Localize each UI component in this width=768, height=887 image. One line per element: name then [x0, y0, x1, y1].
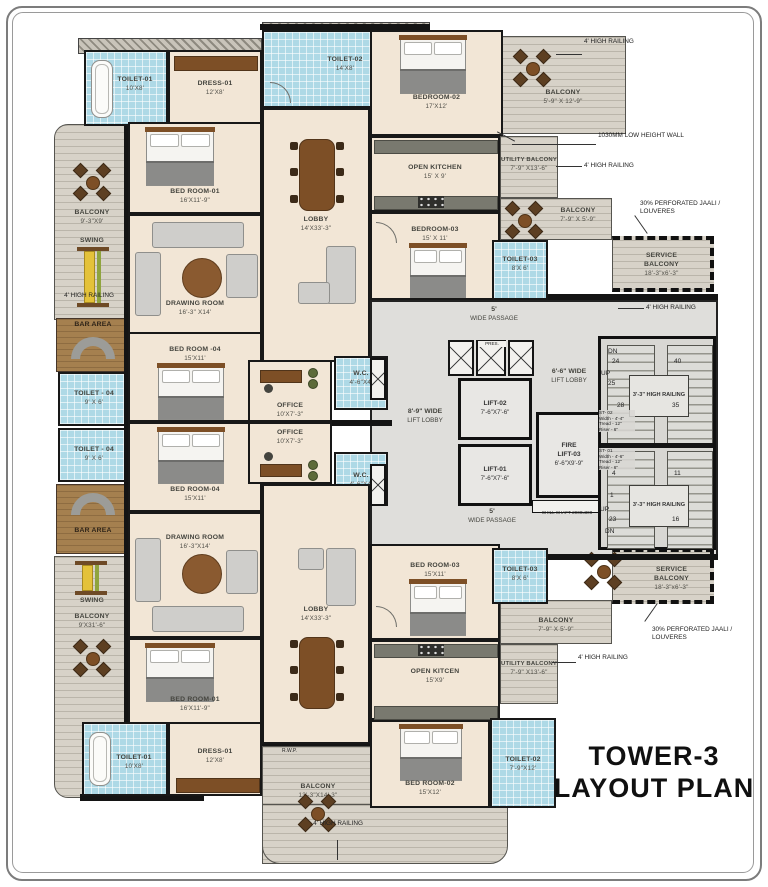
- chair-icon: [513, 49, 529, 65]
- swing-top-label: SWING: [55, 237, 129, 246]
- drawing-room-top-label: DRAWING ROOM16'-3" X14': [130, 300, 260, 317]
- table-icon: [311, 807, 325, 821]
- coffee-table-icon: [182, 554, 222, 594]
- st01-spec: ST- 01 Width - 4'-6" Tread - 12" Riser -…: [599, 448, 635, 470]
- room-office-a: OFFICE10'X7'-3": [248, 360, 332, 422]
- chair-icon: [336, 666, 344, 674]
- room-drawing-room-bottom: DRAWING ROOM16'-3"X14': [128, 512, 262, 638]
- leader-line: [634, 215, 647, 234]
- armchair-icon: [226, 254, 258, 298]
- service-balcony-bottom-label: SERVICE BALCONY18'-3"x6'-3": [613, 566, 710, 592]
- bed-icon: [410, 582, 466, 636]
- stair-num: 35: [672, 402, 679, 409]
- chair-icon: [298, 817, 314, 833]
- room-lobby-bottom: LOBBY14'X33'-3": [262, 484, 370, 744]
- pillow: [181, 134, 209, 147]
- guest-chair-icon: [308, 368, 318, 378]
- patio-set-icon: [73, 163, 111, 201]
- bedroom-02-bottom-label: BED ROOM-0215'X12': [372, 780, 488, 797]
- balcony-bottom-small-label: BALCONY7'-9" X 5'-9": [501, 617, 611, 634]
- chair-icon: [298, 794, 314, 810]
- bed-icon: [400, 38, 466, 94]
- utility-balcony-bottom: UTILITY BALCONY7'-9" X13'-6": [500, 644, 558, 704]
- room-bedroom-01-top: BED ROOM-0116'X11'-9": [128, 122, 262, 214]
- pillow: [404, 42, 432, 55]
- floor-plan-canvas: BALCONY 9'-3"X9' SWING BAR AREA TOILET -…: [0, 0, 768, 887]
- room-toilet-02-bottom: TOILET-027'-9"X12': [490, 718, 556, 808]
- chair-icon: [336, 195, 344, 203]
- stair-landing-st02: 3'-3" HIGH RAILING: [629, 375, 689, 417]
- room-toilet-03-bottom: TOILET-038'X 6': [492, 548, 548, 604]
- utility-balcony-top-label: UTILITY BALCONY7'-9" X13'-6": [501, 157, 557, 173]
- stair-num: 40: [674, 358, 681, 365]
- swing-frame: [95, 565, 99, 591]
- chair-icon: [290, 640, 298, 648]
- stair-num: 1: [610, 492, 614, 499]
- stair-num: 23: [609, 516, 616, 523]
- bedroom-01-bottom-label: BED ROOM-0116'X11'-9": [130, 696, 260, 713]
- chair-icon: [505, 201, 521, 217]
- table-icon: [597, 565, 611, 579]
- chair-icon: [528, 224, 544, 240]
- lift-01: LIFT-017'-6"X7'-6": [458, 444, 532, 506]
- lift-lobby-fire-label: 6'-6" WIDELIFT LOBBY: [534, 368, 604, 385]
- bed-icon: [146, 646, 214, 702]
- sofa-icon: [152, 606, 244, 632]
- guest-chair-icon: [308, 471, 318, 481]
- pillow: [414, 250, 438, 263]
- bedroom-02-top-label: BEDROOM-0217'X12': [372, 94, 501, 111]
- passage-top-label: 5'WIDE PASSAGE: [452, 306, 536, 323]
- bar-area-top: BAR AREA: [56, 318, 130, 372]
- room-bedroom-03-bottom: BED ROOM-0315'X11': [370, 544, 500, 640]
- open-kitchen-top-label: OPEN KITCHEN15' X 9': [372, 164, 498, 181]
- stair-num: 4: [612, 470, 616, 477]
- shaft-icon: [448, 340, 474, 376]
- chair-icon: [290, 195, 298, 203]
- leader-line: [512, 144, 596, 145]
- headboard: [145, 643, 215, 648]
- blanket: [400, 757, 462, 780]
- patio-set-icon: [73, 639, 111, 677]
- chair-icon: [73, 186, 89, 202]
- bar-counter-icon: [71, 493, 115, 515]
- dining-top: [299, 637, 335, 709]
- chair-icon: [290, 168, 298, 176]
- kitchen-counter-icon: [374, 706, 498, 720]
- pillow: [432, 731, 458, 744]
- bar-area-top-label: BAR AREA: [57, 321, 129, 330]
- blanket: [158, 396, 224, 419]
- rwp-label: R.W.P.: [282, 748, 316, 754]
- bedroom-03-bottom-label: BED ROOM-0315'X11': [372, 562, 498, 579]
- headboard: [399, 35, 467, 40]
- office-a-label: OFFICE10'X7'-3": [250, 402, 330, 419]
- room-office-b: OFFICE10'X7'-3": [248, 422, 332, 484]
- headboard: [409, 579, 467, 584]
- stair-landing-st01: 3'-3" HIGH RAILING: [629, 485, 689, 527]
- pillow: [404, 731, 430, 744]
- sofa-icon: [326, 246, 356, 304]
- chair-icon: [584, 575, 600, 591]
- st02-spec: ST- 02 Width - 4'-4" Tread - 12" Riser -…: [599, 410, 635, 432]
- annotation-low-wall: 1030MM LOW HEIGHT WALL: [598, 132, 718, 140]
- room-toilet-01-top: TOILET-0110'X8': [84, 50, 168, 126]
- title-line2: LAYOUT PLAN: [548, 772, 760, 804]
- sofa-icon: [152, 222, 244, 248]
- balcony-top-small-label: BALCONY7'-9" X 5'-9": [545, 207, 611, 224]
- stove-icon: [418, 196, 444, 208]
- chair-icon: [73, 662, 89, 678]
- chair-icon: [607, 575, 623, 591]
- guest-chair-icon: [308, 460, 318, 470]
- shaft-icon: [508, 340, 534, 376]
- dress-01-bottom-label: DRESS-0112'X8': [170, 748, 260, 765]
- passage-bottom-label: 5'WIDE PASSAGE: [450, 508, 534, 525]
- bedroom-04-top-label: BED ROOM -0415'X11': [130, 346, 260, 363]
- chair-icon: [336, 640, 344, 648]
- chair-icon: [336, 168, 344, 176]
- swing-bottom-label: SWING: [55, 597, 129, 606]
- balcony-left-top: BALCONY 9'-3"X9' SWING: [54, 124, 130, 320]
- swing-seat: [82, 565, 93, 591]
- chair-icon: [290, 693, 298, 701]
- stair-dn-label: DN: [608, 348, 617, 355]
- chill-shaft: CHILL SHAFT 2000x300: [532, 500, 602, 513]
- leader-line: [337, 840, 338, 860]
- sofa-icon: [298, 548, 324, 570]
- chair-icon: [336, 142, 344, 150]
- blanket: [158, 460, 224, 483]
- title-line1: TOWER-3: [548, 742, 760, 772]
- office-b-label: OFFICE10'X7'-3": [250, 429, 330, 446]
- room-bedroom-02-top: BEDROOM-0217'X12': [370, 30, 503, 136]
- table-icon: [518, 214, 532, 228]
- wardrobe-icon: [174, 56, 258, 71]
- stair-up-label: UP: [600, 506, 609, 513]
- fire-lift-03: FIRELIFT-036'-6"X9'-9": [536, 412, 602, 498]
- toilet-03-top-label: TOILET-038'X 6': [494, 256, 546, 273]
- room-dress-01-top: DRESS-0112'X8': [168, 50, 262, 126]
- blanket: [146, 161, 214, 185]
- annotation-railing-bottom-right: 4' HIGH RAILING: [578, 654, 636, 662]
- wardrobe-icon: [176, 778, 260, 793]
- dining-table-icon: [290, 632, 344, 714]
- blanket: [400, 69, 466, 93]
- chair-icon: [528, 201, 544, 217]
- swing-bar: [77, 303, 109, 307]
- pillow: [192, 370, 220, 383]
- lift-lobby-main-label: 8'-9" WIDELIFT LOBBY: [392, 408, 458, 425]
- chair-icon: [290, 142, 298, 150]
- lobby-bottom-label: LOBBY14'X33'-3": [264, 606, 368, 623]
- bed-icon: [146, 130, 214, 186]
- balcony-top-right: BALCONY5'-9" X 12'-9": [500, 36, 626, 134]
- chair-icon: [96, 662, 112, 678]
- bedroom-04-bottom-label: BED ROOM-0415'X11': [130, 486, 260, 503]
- chair-icon: [336, 693, 344, 701]
- room-toilet-04-b: TOILET - 049' X 6': [58, 428, 130, 482]
- stair-num: 28: [617, 402, 624, 409]
- utility-balcony-bottom-label: UTILITY BALCONY7'-9" X13'-6": [501, 661, 557, 677]
- chair-icon: [321, 794, 337, 810]
- annotation-railing-mid: 4' HIGH RAILING: [646, 304, 726, 312]
- pres-shaft-label: PRES.: [478, 341, 506, 347]
- chair-icon: [536, 49, 552, 65]
- sofa-icon: [135, 538, 161, 602]
- open-kitchen-bottom-label: OPEN KITCEN15'X9': [372, 668, 498, 685]
- annotation-railing-right: 4' HIGH RAILING: [584, 162, 674, 170]
- leader-line: [644, 603, 657, 622]
- patio-set-icon: [513, 49, 551, 87]
- stair-num: 11: [674, 470, 681, 477]
- bed-icon: [158, 430, 224, 484]
- chair-icon: [96, 639, 112, 655]
- table-icon: [86, 652, 100, 666]
- swing-bar: [75, 591, 107, 595]
- room-open-kitchen-bottom: OPEN KITCEN15'X9': [370, 640, 500, 720]
- stove-icon: [418, 644, 444, 656]
- toilet-04-a-label: TOILET - 049' X 6': [60, 390, 128, 407]
- room-dress-01-bottom: DRESS-0112'X8': [168, 722, 262, 796]
- room-bedroom-04-top: BED ROOM -0415'X11': [128, 332, 262, 422]
- headboard: [399, 724, 463, 729]
- chair-icon: [505, 224, 521, 240]
- guest-chair-icon: [308, 379, 318, 389]
- room-lobby-top: LOBBY14'X33'-3": [262, 108, 370, 362]
- annotation-railing-top-right: 4' HIGH RAILING: [584, 38, 642, 46]
- table-icon: [526, 62, 540, 76]
- annotation-jaali-top: 30% PERFORATED JAALI / LOUVERES: [640, 200, 732, 216]
- dining-top: [299, 139, 335, 211]
- bar-area-bottom-label: BAR AREA: [57, 527, 129, 536]
- chair-icon: [73, 639, 89, 655]
- room-toilet-03-top: TOILET-038'X 6': [492, 240, 548, 300]
- bar-area-bottom: BAR AREA: [56, 484, 130, 554]
- stair-num: 24: [612, 358, 619, 365]
- toilet-03-bottom-label: TOILET-038'X 6': [494, 566, 546, 583]
- swing-icon: [75, 561, 107, 595]
- headboard: [157, 363, 225, 368]
- stair-num: 16: [672, 516, 679, 523]
- dining-table-icon: [290, 134, 344, 216]
- armchair-icon: [226, 550, 258, 594]
- chair-icon: [513, 72, 529, 88]
- drawing-title: TOWER-3 LAYOUT PLAN: [548, 742, 760, 804]
- room-drawing-room-top: DRAWING ROOM16'-3" X14': [128, 214, 262, 336]
- bedroom-01-top-label: BED ROOM-0116'X11'-9": [130, 188, 260, 205]
- pillow: [434, 42, 462, 55]
- toilet-01-top-label: TOILET-0110'X8': [104, 76, 166, 93]
- annotation-railing-left: 4' HIGH RAILING: [62, 292, 116, 300]
- door-arc: [270, 82, 291, 103]
- patio-set-icon: [505, 201, 543, 239]
- door-arc: [376, 606, 397, 627]
- pillow: [181, 650, 209, 663]
- balcony-bottom-small: BALCONY7'-9" X 5'-9": [500, 600, 612, 644]
- pillow: [162, 434, 190, 447]
- toilet-01-bottom-label: TOILET-0110'X8': [102, 754, 166, 771]
- balcony-top-right-label: BALCONY5'-9" X 12'-9": [501, 89, 625, 106]
- lift-02: LIFT-027'-6"X7'-6": [458, 378, 532, 440]
- leader-line: [556, 54, 582, 55]
- pillow: [439, 586, 463, 599]
- office-chair-icon: [264, 384, 273, 393]
- bed-icon: [400, 727, 462, 781]
- coffee-table-icon: [182, 258, 222, 298]
- office-chair-icon: [264, 452, 273, 461]
- bar-counter-icon: [71, 337, 115, 359]
- stair-up-label: UP: [601, 370, 610, 377]
- sofa-icon: [298, 282, 330, 304]
- balcony-top-small: BALCONY7'-9" X 5'-9": [500, 198, 612, 240]
- leader-line: [618, 308, 644, 309]
- pillow: [439, 250, 463, 263]
- annotation-railing-bottom: 4' HIGH RAILING: [312, 820, 364, 828]
- room-bedroom-03-top: BEDROOM-0315' X 11': [370, 212, 500, 300]
- blanket: [410, 275, 466, 297]
- stair-num: 25: [608, 380, 615, 387]
- room-open-kitchen-top: OPEN KITCHEN15' X 9': [370, 136, 500, 212]
- toilet-02-bottom-label: TOILET-027'-9"X12': [492, 756, 554, 773]
- room-toilet-04-a: TOILET - 049' X 6': [58, 372, 130, 426]
- chair-icon: [536, 72, 552, 88]
- table-icon: [86, 176, 100, 190]
- blanket: [410, 612, 466, 635]
- lobby-top-label: LOBBY14'X33'-3": [264, 216, 368, 233]
- headboard: [157, 427, 225, 432]
- balcony-left-top-label: BALCONY 9'-3"X9': [55, 209, 129, 226]
- room-toilet-01-bottom: TOILET-0110'X8': [82, 722, 168, 796]
- chair-icon: [96, 163, 112, 179]
- desk-icon: [260, 464, 302, 477]
- stair-dn-label: DN: [605, 528, 614, 535]
- leader-line: [552, 662, 576, 663]
- chair-icon: [290, 666, 298, 674]
- pillow: [150, 650, 178, 663]
- headboard: [145, 127, 215, 132]
- kitchen-counter-icon: [374, 140, 498, 154]
- service-balcony-top-label: SERVICE BALCONY18'-3"x6'-3": [613, 252, 710, 278]
- utility-balcony-top: UTILITY BALCONY7'-9" X13'-6": [500, 136, 558, 198]
- headboard: [409, 243, 467, 248]
- pillow: [414, 586, 438, 599]
- annotation-jaali-bottom: 30% PERFORATED JAALI / LOUVERES: [652, 626, 744, 642]
- sofa-icon: [326, 548, 356, 606]
- room-bedroom-01-bottom: BED ROOM-0116'X11'-9": [128, 638, 262, 730]
- chair-icon: [73, 163, 89, 179]
- room-bedroom-02-bottom: BED ROOM-0215'X12': [370, 720, 490, 808]
- dress-01-top-label: DRESS-0112'X8': [170, 80, 260, 97]
- pillow: [162, 370, 190, 383]
- desk-icon: [260, 370, 302, 383]
- balcony-left-bottom-label: BALCONY 9'X31'-6": [55, 613, 129, 630]
- pillow: [150, 134, 178, 147]
- duct-shaft-icon: [370, 358, 386, 400]
- pillow: [192, 434, 220, 447]
- room-bedroom-04-bottom: BED ROOM-0415'X11': [128, 422, 262, 512]
- leader-line: [556, 166, 582, 167]
- bed-icon: [410, 246, 466, 298]
- duct-shaft-icon: [370, 464, 386, 506]
- service-balcony-top: SERVICE BALCONY18'-3"x6'-3": [612, 236, 714, 292]
- bed-icon: [158, 366, 224, 420]
- toilet-04-b-label: TOILET - 049' X 6': [60, 446, 128, 463]
- chair-icon: [96, 186, 112, 202]
